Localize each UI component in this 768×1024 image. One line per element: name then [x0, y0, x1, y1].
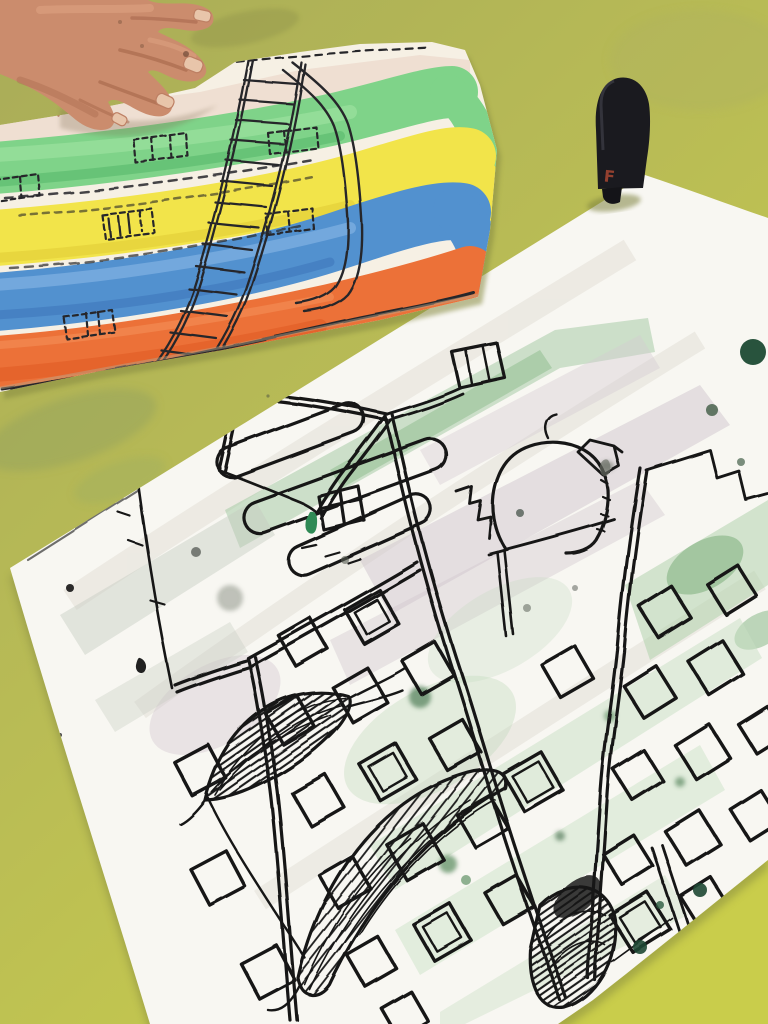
photo-of-drawings: F — [0, 0, 768, 1024]
cap-letter-f: F — [603, 166, 616, 186]
big-splatter-dot — [740, 339, 766, 365]
